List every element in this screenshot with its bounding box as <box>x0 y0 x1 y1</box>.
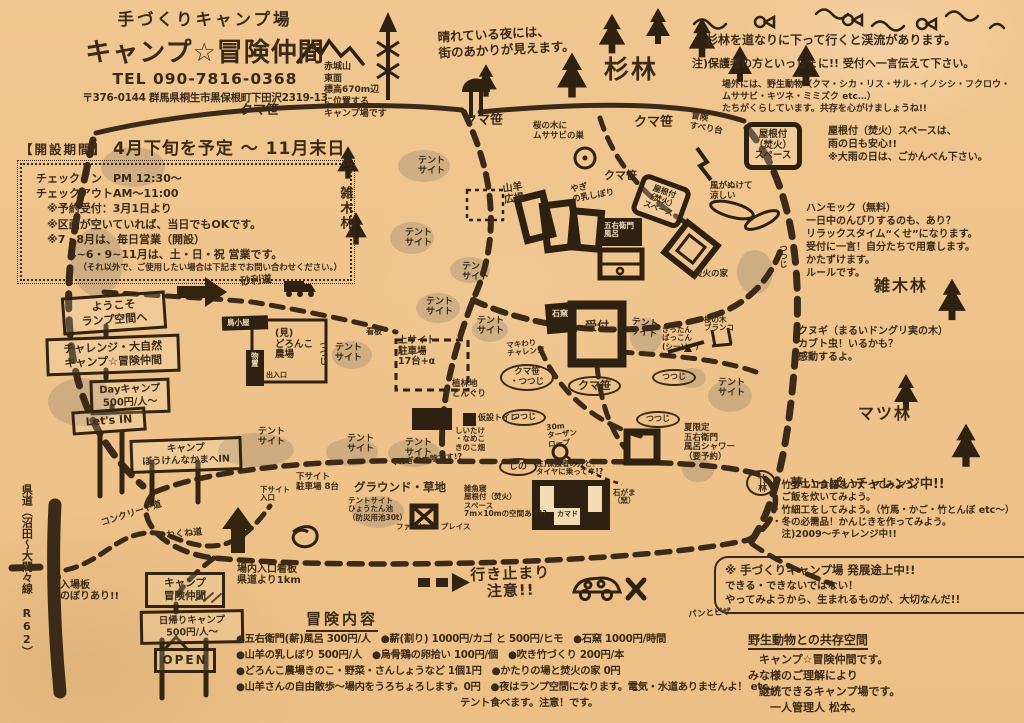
map-label: 五右衛門 風呂 <box>604 222 634 239</box>
map-label: 竹林 <box>746 470 776 496</box>
map-label: つつじ <box>636 411 680 428</box>
map-label: カマド <box>557 511 578 519</box>
development-title: ※ 手づくりキャンプ場 発展途上中!! <box>725 562 1024 578</box>
map-label: クマ笹 <box>634 116 673 131</box>
map-label: 仮設トイレ <box>478 414 518 423</box>
map-label: 注)保護者の方と！ タイヤに乗ってネ!? <box>536 460 603 477</box>
map-label: テント サイト <box>718 378 745 398</box>
closing-title: 野生動物との共存空間 <box>748 631 868 650</box>
menu-line: ●山羊さんの自由散歩～場内をうろちょろします。0円 ●夜はランプ空間になります。… <box>236 680 822 696</box>
menu-lines: ●五右衛門(薪)風呂 300円/人 ●薪(割り) 1000円/カゴ と 500円… <box>236 632 822 712</box>
map-label: 桜の木に ムササビの巣 <box>533 122 584 141</box>
menu-heading: 冒険内容 <box>306 608 378 632</box>
map-label: 看板 <box>366 328 382 337</box>
map-label: クマ笹 ・つつじ <box>500 364 554 391</box>
map-label: つつじ <box>318 341 327 365</box>
closing-body: キャンプ☆冒険仲間です。 みな様のご理解により 継続できるキャンプ場です。 一人… <box>748 652 1020 716</box>
map-label: クマ笹 <box>464 114 503 129</box>
map-label: グラウンド・草地 <box>354 481 446 494</box>
map-label: 杉林 <box>604 56 658 84</box>
map-label: 下サイト 入口 <box>260 486 290 503</box>
menu-line: ●どろんこ農場きのこ・野菜・さんしょうなど 1個1円 ●かたりの場と焚火の家 0… <box>236 664 822 680</box>
campsite-flyer: 手づくりキャンプ場 キャンプ☆冒険仲間 TEL 090-7816-0368 〒3… <box>0 0 1024 723</box>
map-label: 夏限定 五右衛門 風呂シャワー （要予約） <box>684 424 735 462</box>
map-label: テント サイト <box>258 427 285 447</box>
map-label: くぬぎの木陰です!? <box>390 453 463 468</box>
map-label: 雑木林 <box>874 277 928 295</box>
map-label: 物置 <box>250 352 258 367</box>
map-label: やぎ の乳しぼり <box>570 179 615 205</box>
map-label: ぎったん ばっこん (シーソー) <box>662 326 699 351</box>
map-label: テント サイト <box>418 156 445 176</box>
map-label: テント サイト <box>426 297 453 317</box>
map-label: 風がぬけて 涼しい <box>710 182 753 201</box>
map-label: テント サイト <box>335 343 362 363</box>
map-label: 植林地 どんぐり <box>452 380 486 399</box>
map-label: 屋根付 （焚火） スペース <box>744 122 802 170</box>
menu-line: ●山羊の乳しぼり 500円/人 ●烏骨鶏の卵拾い 100円/個 ●吹き竹づくり … <box>236 648 822 664</box>
map-label: 県道（沼田～大間々線 R62） <box>20 484 32 689</box>
map-label: 砂利道 <box>240 274 272 288</box>
map-label: 雑魚寝 屋根付（焚火） スペース 7m×10mの空間あり!? <box>464 485 547 519</box>
map-label: 受付 <box>585 320 609 333</box>
map-label: 出入口 <box>266 372 287 380</box>
map-label: 入場板 のぼりあり!! <box>60 580 119 602</box>
map-label: マツ林 <box>858 405 912 423</box>
map-label: クマ笹 <box>240 104 279 119</box>
map-label: つつじ <box>652 369 696 386</box>
map-label: コンクリート道 <box>100 500 163 529</box>
map-label: くねくね道 <box>157 527 203 542</box>
closing-note: 野生動物との共存空間 キャンプ☆冒険仲間です。 みな様のご理解により 継続できる… <box>748 629 1020 716</box>
map-label: テント サイト <box>477 316 504 336</box>
map-label: テント サイト <box>405 228 432 248</box>
map-label: 場内入口看板 県道より1km <box>237 564 301 586</box>
map-label: マキわり チャレンジ <box>506 338 545 359</box>
menu-line: テント食べます。注意！です。 <box>236 696 822 712</box>
map-label: 桜の木 ブランコ <box>704 316 734 333</box>
map-label: ファイヤー・プレイス <box>396 523 471 531</box>
map-label: テントサイト ひょうたん池 （防災用池30t） <box>348 497 407 522</box>
map-label: テント サイト <box>630 317 659 340</box>
map-label: 鳥小屋 <box>227 319 250 327</box>
map-label: 雑木林 <box>337 186 352 231</box>
map-label: 山羊 広場 <box>502 181 525 206</box>
map-label: 上サイト 駐車場 17台+α <box>398 336 436 368</box>
map-label: テント サイト <box>347 434 374 454</box>
map-label: クマ笹 <box>568 376 621 396</box>
menu-line: ●五右衛門(薪)風呂 300円/人 ●薪(割り) 1000円/カゴ と 500円… <box>236 632 822 648</box>
map-label: 下サイト 駐車場 8台 <box>296 473 339 492</box>
map-label: 行き止まり 注意!! <box>470 564 551 600</box>
map-label: 屋根付 （焚火） スペース <box>629 172 693 230</box>
development-box: ※ 手づくりキャンプ場 発展途上中!! できる・できないではない！ やってみよう… <box>714 556 1024 614</box>
map-label: 30m ターザン ロープ <box>546 421 578 449</box>
development-body: できる・できないではない！ やってみようから、生まれるものが、大切なんだ!! <box>725 580 1024 608</box>
map-label: しいたけ ・なめこ きのこ畑 <box>455 427 485 452</box>
map-label: 焚火の家 <box>694 270 728 280</box>
map-label: 石窯 <box>552 310 568 319</box>
map-label: 冒険 すべり台 <box>689 112 725 137</box>
adventure-menu: 冒険内容 ●五右衛門(薪)風呂 300円/人 ●薪(割り) 1000円/カゴ と… <box>236 608 822 712</box>
map-label: (見) どろんこ 農場 <box>275 329 313 361</box>
map-label: 石がま （窯） <box>613 489 636 506</box>
map-label: テント サイト <box>462 262 489 282</box>
map-label: しの <box>499 458 537 476</box>
map-label: つつじ <box>778 244 787 268</box>
